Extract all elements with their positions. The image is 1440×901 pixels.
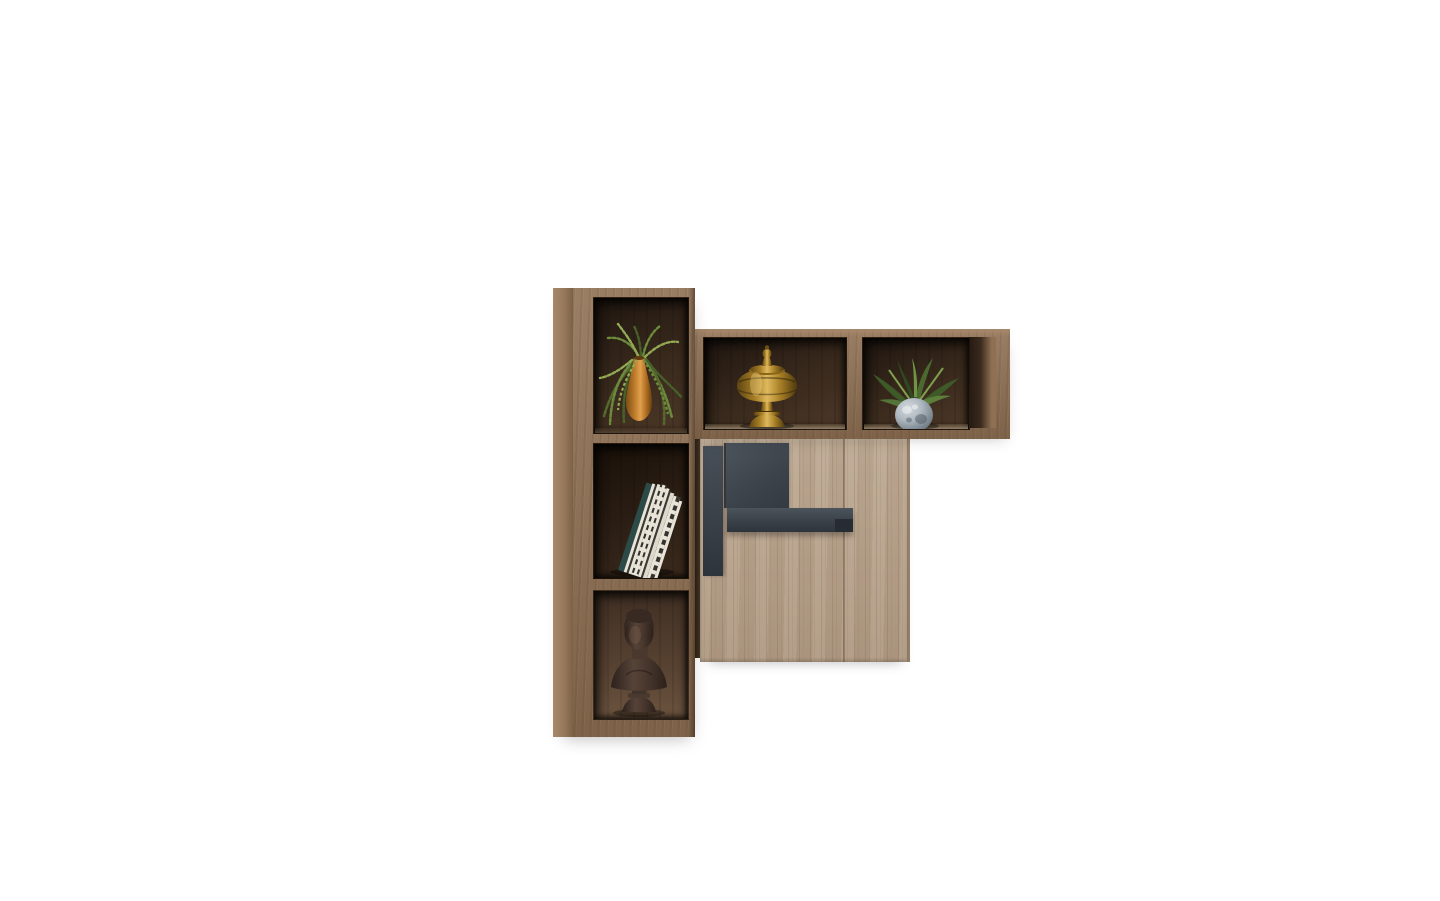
brass-urn bbox=[704, 338, 846, 429]
left-column-compartment-bottom bbox=[593, 590, 689, 720]
top-shelf-compartment-right bbox=[862, 337, 970, 430]
left-column-side-panel bbox=[553, 288, 573, 737]
bust-statue bbox=[594, 591, 688, 719]
leaning-books bbox=[594, 444, 688, 578]
cabinet bbox=[700, 438, 910, 662]
product-photo bbox=[0, 0, 1440, 901]
cabinet-handle-panel bbox=[726, 443, 789, 508]
cabinet-door-seam bbox=[843, 438, 845, 662]
top-shelf-compartment-left bbox=[703, 337, 847, 430]
book-stack bbox=[618, 480, 685, 578]
left-column-compartment-middle bbox=[593, 443, 689, 579]
top-shelf-top-face bbox=[688, 329, 1010, 337]
plant-in-vase bbox=[863, 338, 969, 429]
cabinet-handle-bar bbox=[727, 508, 853, 532]
cabinet-trim-strip bbox=[703, 446, 723, 576]
left-column-compartment-top bbox=[593, 297, 689, 434]
top-shelf-side-depth bbox=[968, 337, 996, 428]
hanging-plant bbox=[594, 298, 688, 433]
cabinet-handle-notch bbox=[835, 519, 853, 532]
